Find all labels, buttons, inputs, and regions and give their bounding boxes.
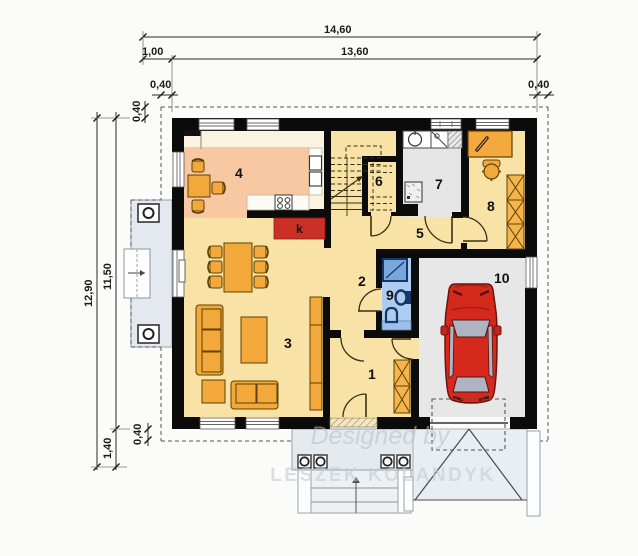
svg-text:2: 2 bbox=[358, 273, 366, 289]
svg-text:4: 4 bbox=[235, 165, 243, 181]
svg-text:11,50: 11,50 bbox=[102, 263, 114, 290]
svg-text:0,40: 0,40 bbox=[150, 79, 171, 91]
svg-text:1,00: 1,00 bbox=[142, 46, 163, 58]
svg-text:0,40: 0,40 bbox=[132, 424, 144, 445]
svg-text:0,40: 0,40 bbox=[131, 101, 143, 122]
svg-text:3: 3 bbox=[284, 335, 292, 351]
svg-text:12,90: 12,90 bbox=[83, 279, 95, 307]
svg-text:6: 6 bbox=[375, 173, 383, 189]
svg-text:k: k bbox=[296, 222, 303, 236]
svg-text:14,60: 14,60 bbox=[324, 24, 352, 36]
svg-text:0,40: 0,40 bbox=[528, 79, 549, 91]
svg-text:Designed by: Designed by bbox=[311, 422, 451, 450]
svg-text:1,40: 1,40 bbox=[102, 438, 114, 459]
svg-text:LESZEK KOLANDYK: LESZEK KOLANDYK bbox=[270, 465, 495, 486]
svg-text:8: 8 bbox=[487, 198, 495, 214]
svg-text:1: 1 bbox=[368, 366, 376, 382]
svg-text:13,60: 13,60 bbox=[341, 46, 369, 58]
svg-text:10: 10 bbox=[494, 270, 510, 286]
svg-text:7: 7 bbox=[435, 176, 443, 192]
svg-text:9: 9 bbox=[386, 287, 394, 303]
svg-text:5: 5 bbox=[416, 225, 424, 241]
